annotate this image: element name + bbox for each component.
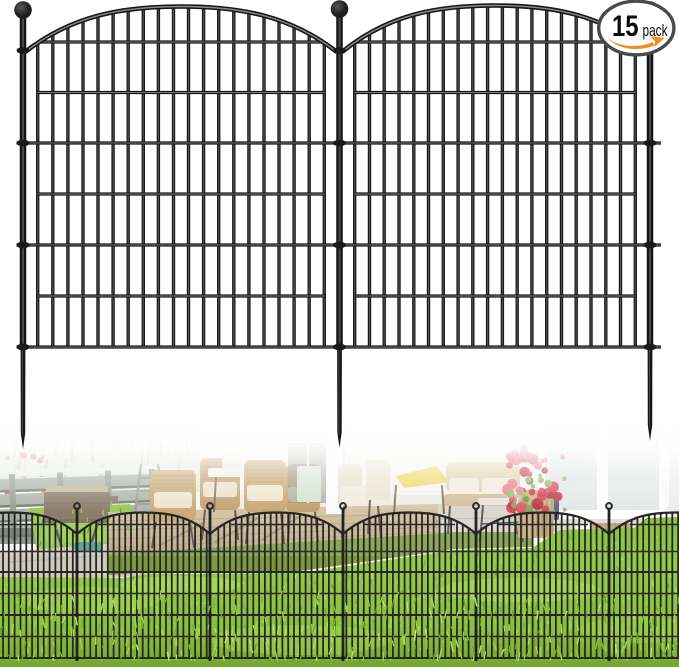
svg-text:15: 15 [612,10,639,43]
